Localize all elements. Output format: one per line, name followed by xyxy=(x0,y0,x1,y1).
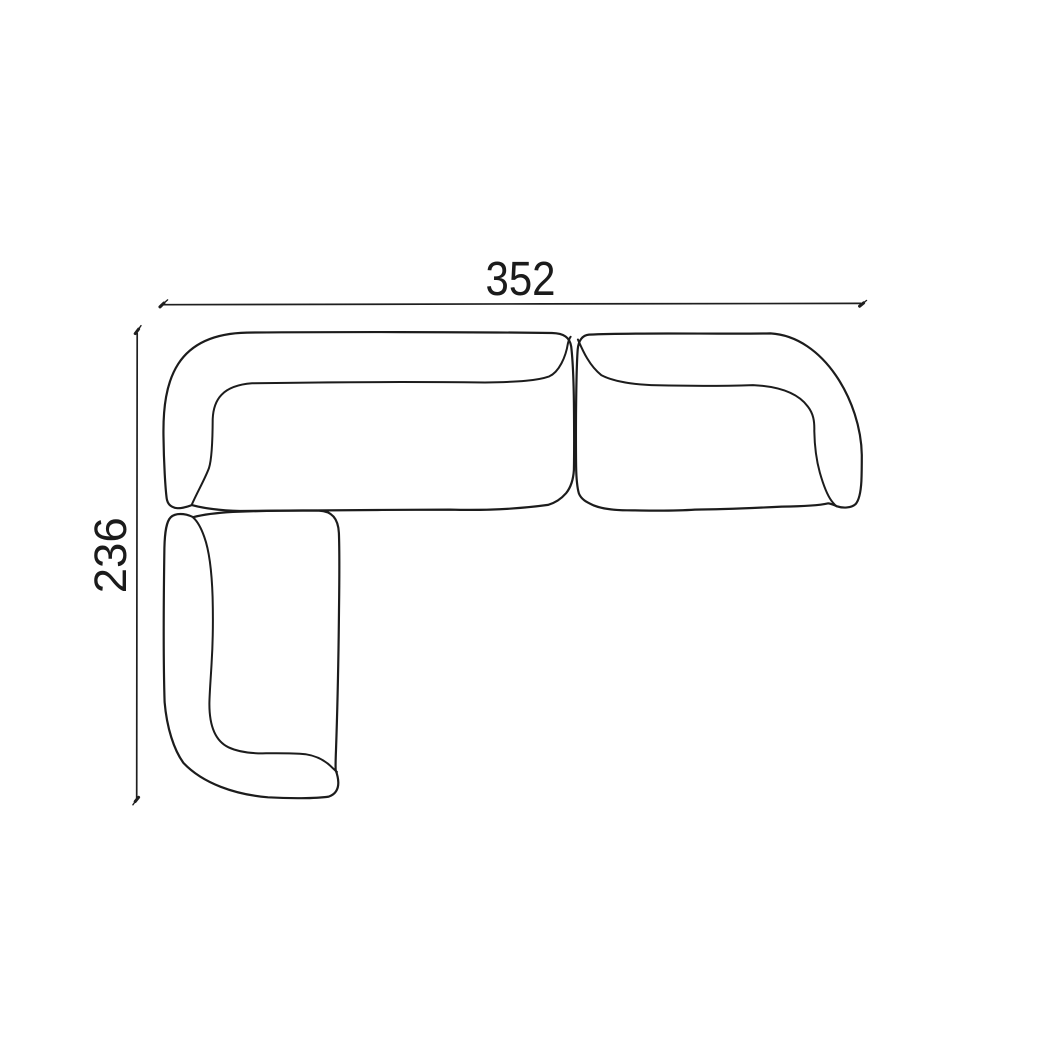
svg-text:236: 236 xyxy=(85,517,136,593)
svg-text:352: 352 xyxy=(486,253,556,306)
